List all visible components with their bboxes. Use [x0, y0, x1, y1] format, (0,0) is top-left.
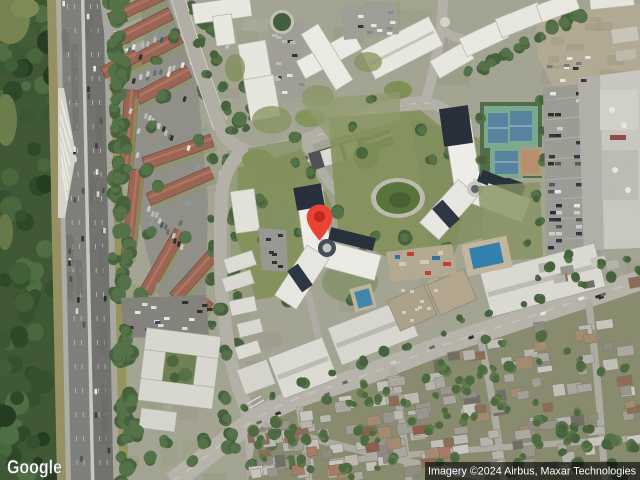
- svg-text:Imagery ©2024 Airbus, Maxar Te: Imagery ©2024 Airbus, Maxar Technologies: [428, 465, 636, 477]
- svg-text:Google: Google: [7, 457, 62, 479]
